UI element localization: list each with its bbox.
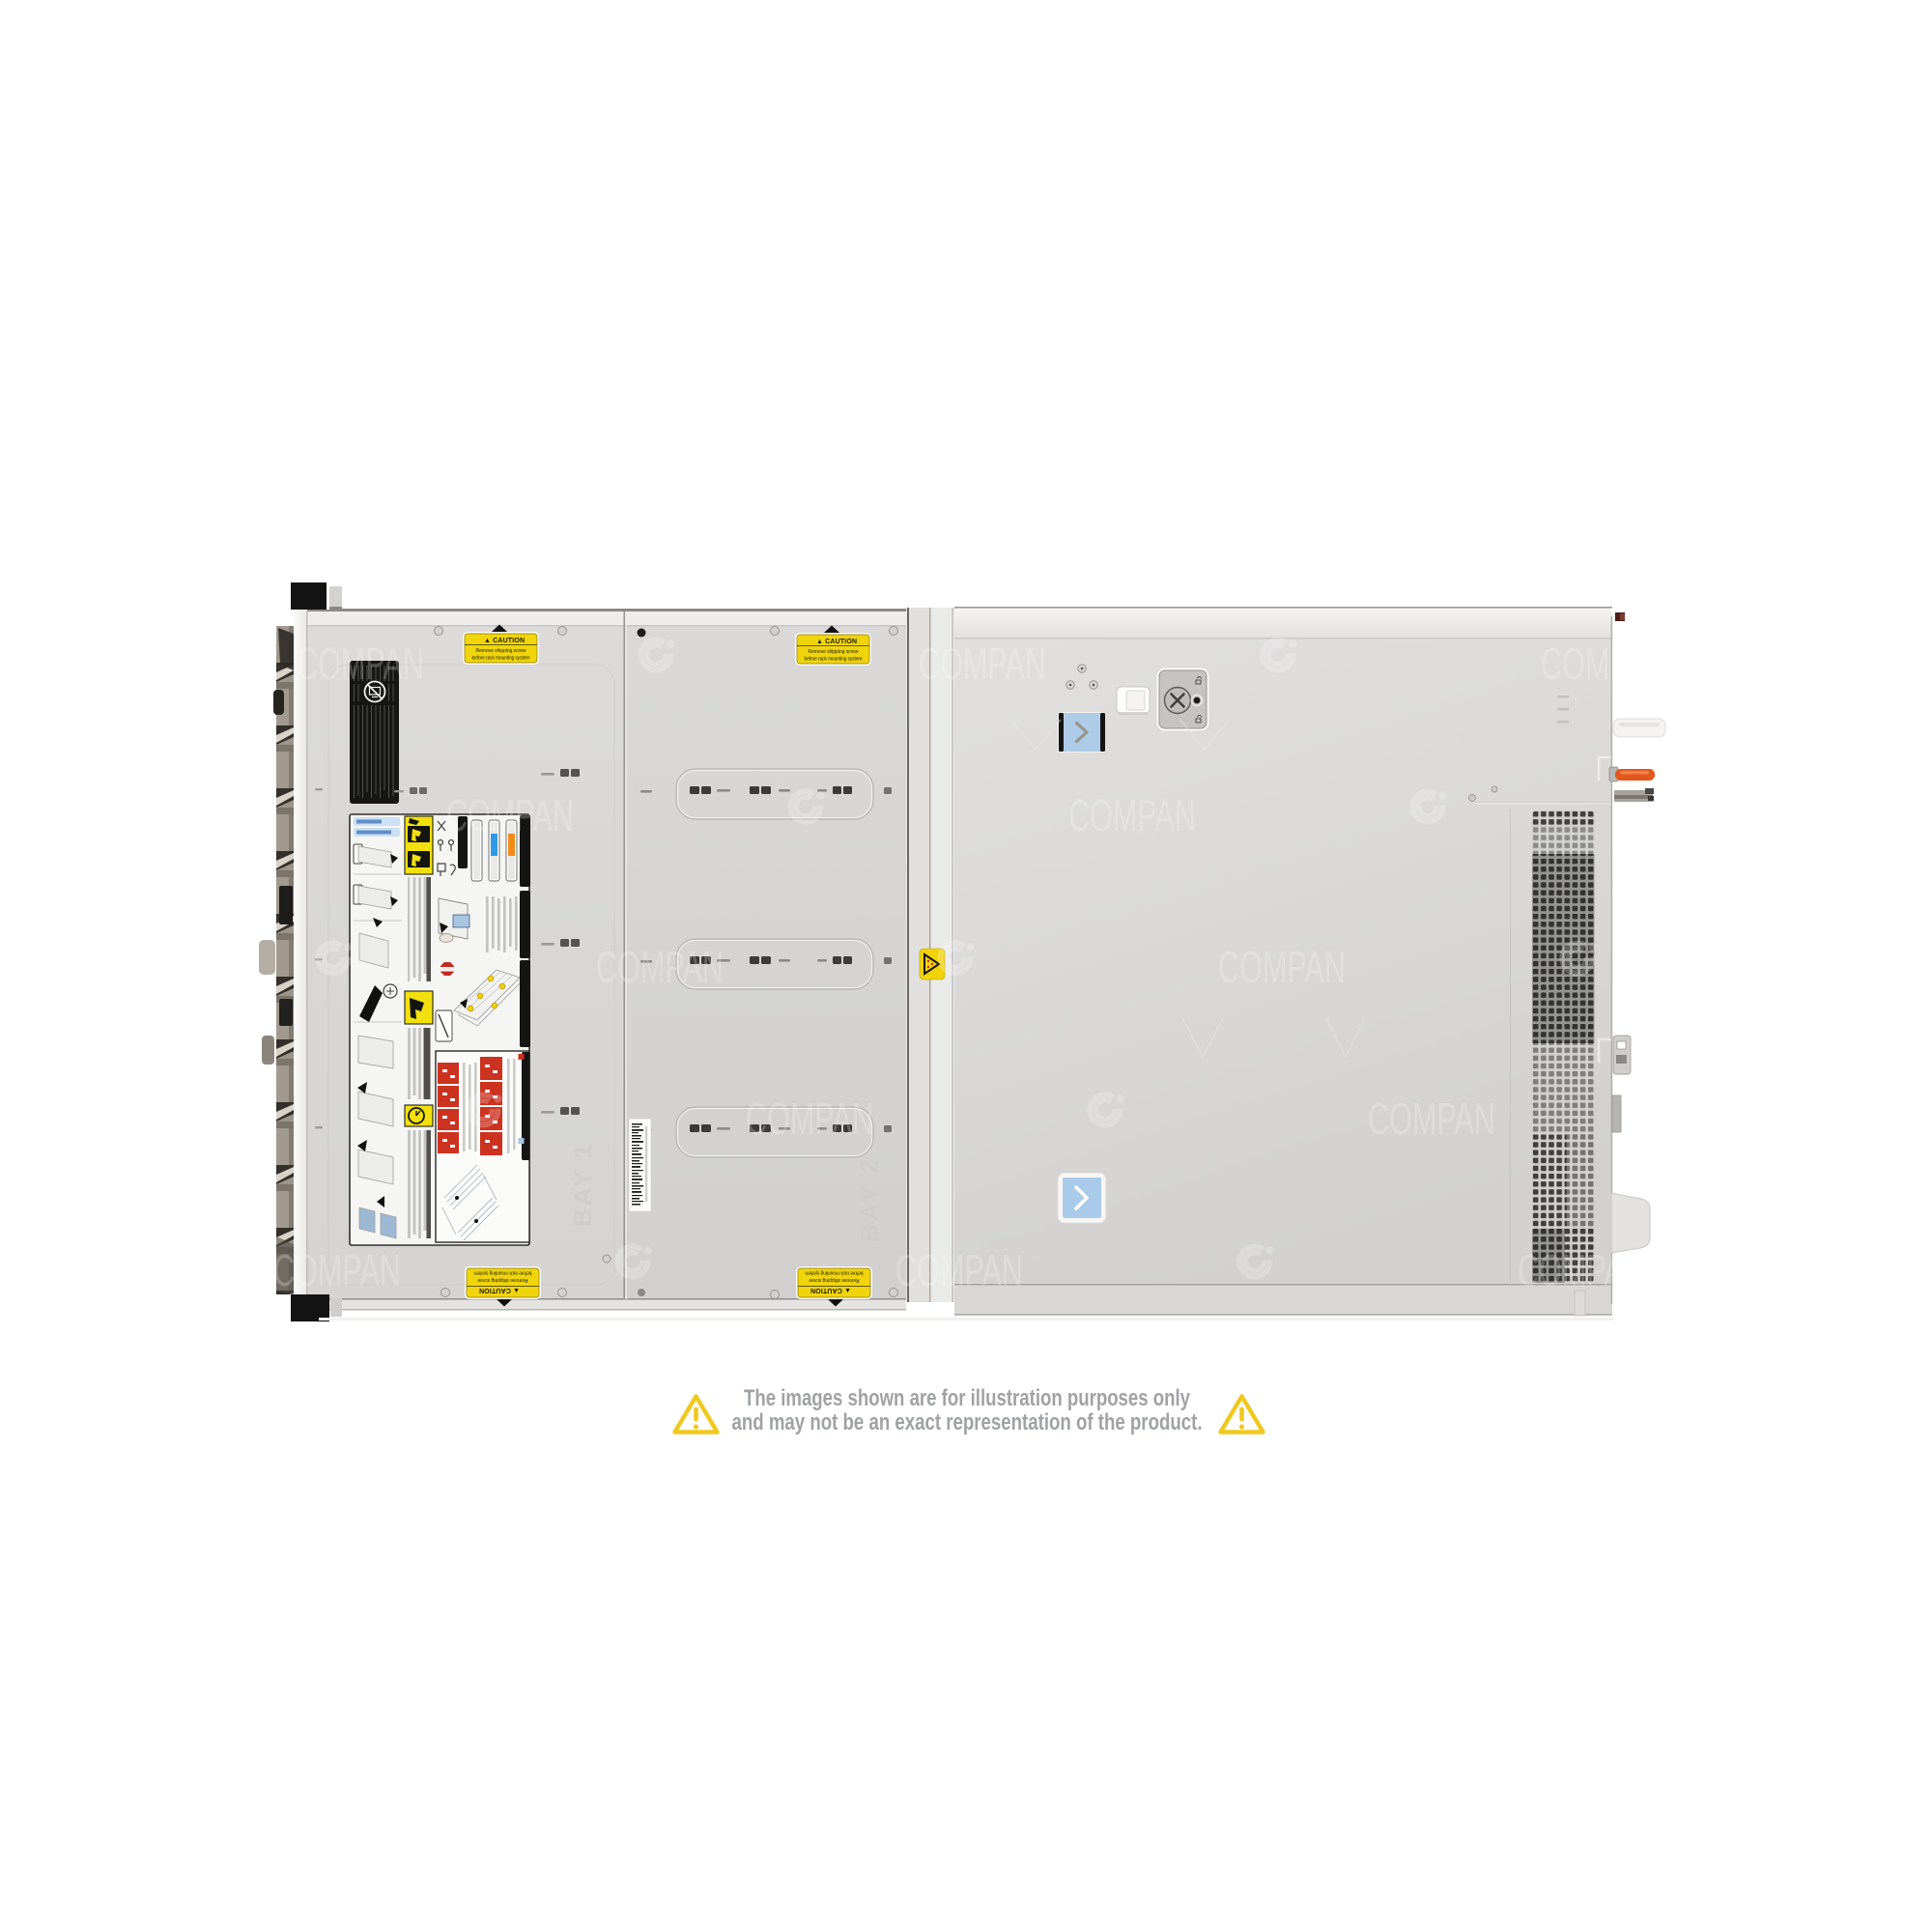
svg-text:The images shown are for illus: The images shown are for illustration pu… bbox=[744, 1385, 1191, 1411]
svg-text:COMPAN: COMPAN bbox=[1518, 1245, 1645, 1295]
svg-text:COMPAN: COMPAN bbox=[919, 639, 1046, 689]
svg-text:COMPAN: COMPAN bbox=[746, 1094, 873, 1144]
svg-text:COMPAN: COMPAN bbox=[1068, 790, 1196, 840]
svg-text:COMPAN: COMPAN bbox=[723, 1700, 850, 1750]
svg-text:COMPAN: COMPAN bbox=[1218, 942, 1346, 992]
svg-text:COMPAN: COMPAN bbox=[1494, 1852, 1622, 1902]
svg-text:COMPAN: COMPAN bbox=[446, 790, 574, 840]
svg-text:COMPAN: COMPAN bbox=[297, 639, 424, 689]
svg-text:COMPAN: COMPAN bbox=[147, 487, 274, 537]
svg-text:COMPAN: COMPAN bbox=[1667, 1397, 1795, 1447]
svg-text:COMPAN: COMPAN bbox=[1391, 487, 1519, 537]
svg-text:COMPAN: COMPAN bbox=[0, 942, 101, 992]
svg-text:COMPAN: COMPAN bbox=[124, 1094, 251, 1144]
svg-text:and may not be an exact repres: and may not be an exact representation o… bbox=[732, 1409, 1203, 1435]
svg-text:COMPAN: COMPAN bbox=[1840, 942, 1932, 992]
svg-text:COMPAN: COMPAN bbox=[1195, 1548, 1322, 1599]
svg-text:COMPAN: COMPAN bbox=[100, 1700, 228, 1750]
svg-text:BAY 2: BAY 2 bbox=[855, 1156, 884, 1242]
svg-text:COMPAN: COMPAN bbox=[0, 1548, 78, 1599]
svg-text:COMPAN: COMPAN bbox=[1241, 335, 1369, 385]
svg-text:COMPAN: COMPAN bbox=[273, 1245, 401, 1295]
svg-text:COMPAN: COMPAN bbox=[1541, 639, 1668, 689]
svg-text:COMPAN: COMPAN bbox=[0, 335, 125, 385]
svg-text:COMPAN: COMPAN bbox=[596, 942, 724, 992]
svg-text:Remove shipping screw: Remove shipping screw bbox=[476, 648, 526, 654]
svg-text:before rack mounting system: before rack mounting system bbox=[472, 656, 530, 662]
svg-text:COMPAN: COMPAN bbox=[1368, 1094, 1495, 1144]
svg-text:BAY 1: BAY 1 bbox=[568, 1141, 597, 1227]
svg-text:COMPAN: COMPAN bbox=[250, 1852, 378, 1902]
svg-text:COMPAN: COMPAN bbox=[619, 335, 747, 385]
svg-text:COMPAN: COMPAN bbox=[1817, 1548, 1932, 1599]
svg-text:COMPAN: COMPAN bbox=[1690, 790, 1818, 840]
svg-text:▲ CAUTION: ▲ CAUTION bbox=[484, 638, 525, 644]
svg-text:COMPAN: COMPAN bbox=[1863, 335, 1932, 385]
svg-text:COMPAN: COMPAN bbox=[423, 1397, 551, 1447]
svg-text:COMPAN: COMPAN bbox=[769, 487, 896, 537]
svg-text:COMPAN: COMPAN bbox=[895, 1245, 1023, 1295]
svg-text:COMPAN: COMPAN bbox=[1345, 1700, 1472, 1750]
svg-text:COMPAN: COMPAN bbox=[573, 1548, 700, 1599]
svg-text:COMPAN: COMPAN bbox=[872, 1852, 1000, 1902]
